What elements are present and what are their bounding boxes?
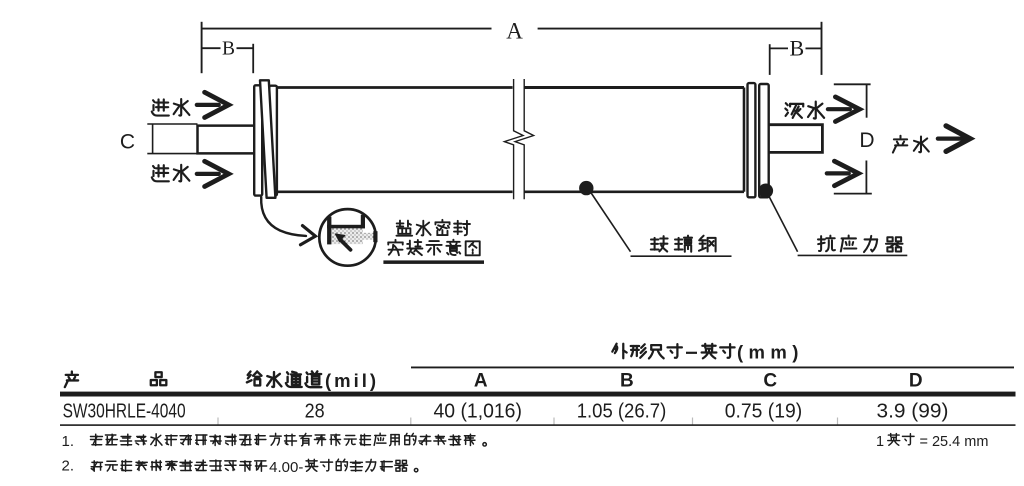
svg-text:D: D [859, 129, 874, 152]
svg-text:4.00-: 4.00- [269, 459, 303, 476]
svg-text:= 25.4 mm: = 25.4 mm [920, 434, 989, 450]
svg-text:0.75 (19): 0.75 (19) [725, 400, 802, 422]
svg-text:C: C [763, 370, 777, 391]
svg-text:3.9 (99): 3.9 (99) [877, 400, 949, 422]
svg-text:D: D [909, 370, 923, 391]
svg-text:(mil): (mil) [325, 370, 379, 391]
svg-text:28: 28 [305, 401, 325, 423]
svg-text:SW30HRLE-4040: SW30HRLE-4040 [63, 401, 186, 423]
svg-text:C: C [120, 130, 135, 153]
svg-text:(mm): (mm) [737, 342, 804, 363]
svg-text:B: B [789, 36, 804, 61]
svg-text:1.05 (26.7): 1.05 (26.7) [577, 400, 667, 422]
svg-text:40 (1,016): 40 (1,016) [434, 400, 522, 422]
svg-text:1: 1 [876, 434, 884, 450]
svg-text:1.: 1. [62, 433, 75, 450]
svg-text:A: A [506, 19, 523, 44]
svg-text:B: B [222, 38, 235, 59]
svg-text:B: B [620, 370, 634, 391]
svg-text:A: A [474, 370, 488, 391]
svg-text:2.: 2. [62, 458, 75, 475]
